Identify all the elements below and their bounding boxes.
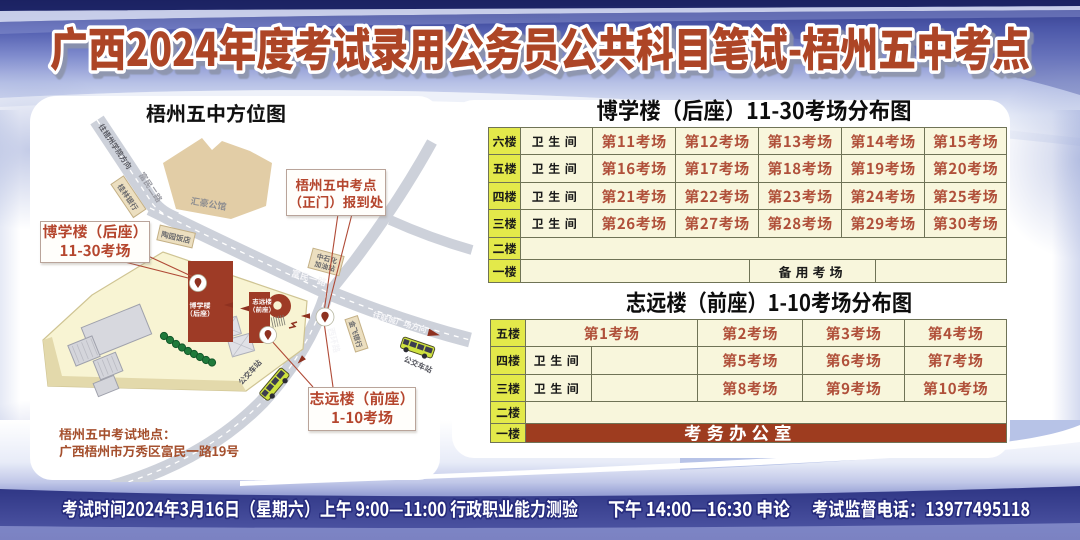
svg-text:考试监督电话：13977495118: 考试监督电话：13977495118 (812, 495, 1030, 522)
svg-text:（后座）: （后座） (186, 309, 214, 319)
svg-text:考试时间2024年3月16日（星期六）上午 9:00—11:: 考试时间2024年3月16日（星期六）上午 9:00—11:00 行政职业能力测… (62, 495, 578, 522)
svg-text:（前座）: （前座） (249, 304, 275, 314)
svg-text:下午 14:00—16:30 申论: 下午 14:00—16:30 申论 (608, 495, 790, 522)
svg-text:广西2024年度考试录用公务员公共科目笔试-梧州五中考点: 广西2024年度考试录用公务员公共科目笔试-梧州五中考点 (50, 14, 1030, 80)
svg-text:往梧州学院方向: 往梧州学院方向 (96, 122, 134, 172)
